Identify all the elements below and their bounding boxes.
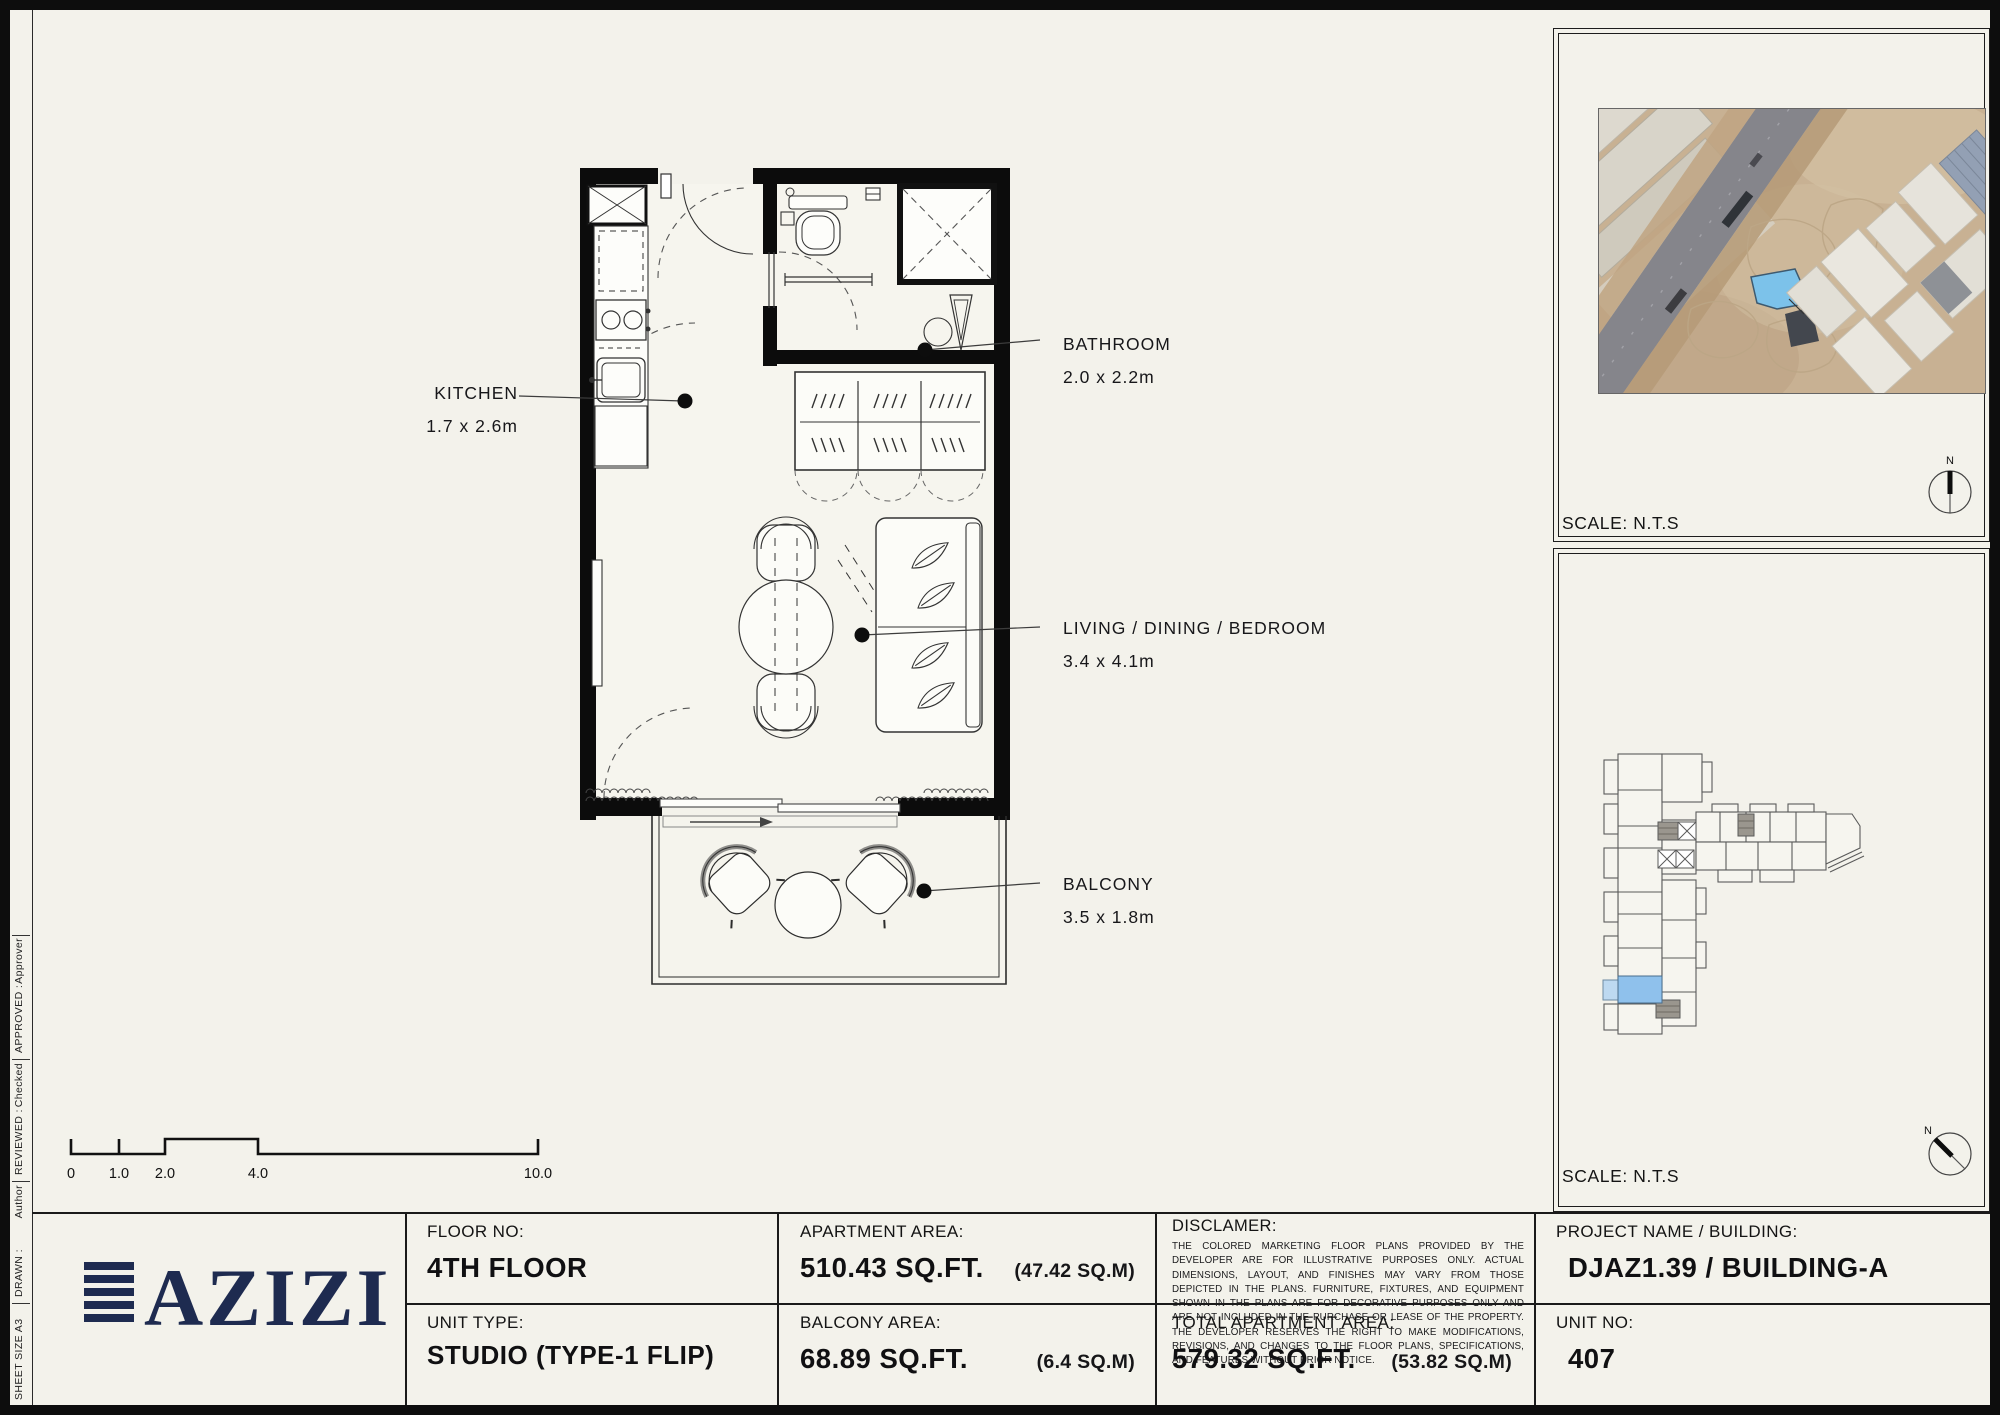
scale-tick: 2.0 [155,1166,175,1182]
reviewed-value: Checked [13,1063,25,1107]
scale-tick: 10.0 [524,1166,552,1182]
bed [876,518,982,732]
scale-tick: 4.0 [248,1166,268,1182]
living-dims: 3.4 x 4.1m [1063,645,1326,678]
reviewed-field: REVIEWED : Checked [13,1063,25,1175]
apartment-area-value: 510.43 SQ.FT. [800,1252,984,1284]
apartment-area-label: APARTMENT AREA: [800,1222,964,1242]
apartment-area-row: 510.43 SQ.FT. (47.42 SQ.M) [800,1252,1135,1284]
total-area-label: TOTAL APARTMENT AREA: [1172,1313,1395,1333]
azizi-logo: AZIZI [84,1262,391,1327]
sidebar-divider [32,10,33,1405]
sheet-size-field: SHEET SIZE A3 [13,1308,25,1400]
kitchen-name: KITCHEN [368,377,518,410]
sidebar-tick [12,1303,30,1304]
sidebar-tick [12,1059,30,1060]
unit-type-value: STUDIO (TYPE-1 FLIP) [427,1340,714,1371]
apartment-area-metric: (47.42 SQ.M) [1014,1260,1135,1283]
floor-plan-sheet: SHEET SIZE A3 DRAWN : Author REVIEWED : … [0,0,2000,1415]
title-block-col-line [405,1212,407,1405]
project-name-label: PROJECT NAME / BUILDING: [1556,1222,1798,1242]
balcony-dims: 3.5 x 1.8m [1063,901,1155,934]
bathroom-label: BATHROOM 2.0 x 2.2m [1063,328,1171,394]
sidebar-tick [12,1181,30,1182]
highlighted-unit [1618,976,1662,1003]
total-area-row: 579.32 SQ.FT. (53.82 SQ.M) [1172,1343,1512,1375]
scale-tick: 1.0 [109,1166,129,1182]
balcony-area-row: 68.89 SQ.FT. (6.4 SQ.M) [800,1343,1135,1375]
unit-floor-plan-drawing [430,150,1070,1050]
balcony-area-label: BALCONY AREA: [800,1313,941,1333]
site-map-scale-note: SCALE: N.T.S [1562,513,1679,534]
floor-no-value: 4TH FLOOR [427,1252,587,1284]
approved-value: Approver [13,938,25,984]
project-name-value: DJAZ1.39 / BUILDING-A [1568,1252,1889,1284]
drawn-value: Author [13,1185,25,1218]
total-area-metric: (53.82 SQ.M) [1391,1351,1512,1374]
bathroom-name: BATHROOM [1063,328,1171,361]
balcony-area-metric: (6.4 SQ.M) [1037,1351,1135,1374]
graphic-scale-bar: 0 1.0 2.0 4.0 10.0 [50,1120,610,1200]
north-compass-icon: N [1916,1118,1980,1184]
azizi-logo-text: AZIZI [144,1268,391,1327]
kitchen-label: KITCHEN 1.7 x 2.6m [368,377,518,443]
unit-no-label: UNIT NO: [1556,1313,1634,1333]
bathroom-dims: 2.0 x 2.2m [1063,361,1171,394]
title-block-top-line [32,1212,1990,1214]
shaft-duct [900,186,994,282]
sidebar-tick [12,935,30,936]
total-area-value: 579.32 SQ.FT. [1172,1343,1356,1375]
approved-label: APPROVED : [13,985,25,1053]
disclaimer-heading: DISCLAMER: [1172,1217,1277,1236]
title-block-col-line [1534,1212,1536,1405]
floor-no-label: FLOOR NO: [427,1222,524,1242]
kitchen-dims: 1.7 x 2.6m [368,410,518,443]
balcony-name: BALCONY [1063,868,1155,901]
scale-tick: 0 [67,1166,75,1182]
title-block-col-line [777,1212,779,1405]
key-plan-drawing [1600,752,1880,1052]
site-map-image [1598,108,1986,394]
approved-field: APPROVED : Approver [13,938,25,1053]
living-name: LIVING / DINING / BEDROOM [1063,612,1326,645]
sheet-size-label: SHEET SIZE A3 [13,1319,25,1400]
drawn-field: DRAWN : Author [13,1185,25,1297]
key-plan-scale-note: SCALE: N.T.S [1562,1166,1679,1187]
living-label: LIVING / DINING / BEDROOM 3.4 x 4.1m [1063,612,1326,678]
reviewed-label: REVIEWED : [13,1109,25,1175]
title-block-col-line [1155,1212,1157,1405]
balcony-area-value: 68.89 SQ.FT. [800,1343,968,1375]
unit-type-label: UNIT TYPE: [427,1313,524,1333]
north-letter: N [1924,1125,1932,1137]
north-compass-icon: N [1920,450,1980,520]
azizi-logo-bars-icon [84,1262,134,1327]
balcony-label: BALCONY 3.5 x 1.8m [1063,868,1155,934]
unit-no-value: 407 [1568,1343,1615,1375]
north-letter: N [1946,455,1954,467]
drawn-label: DRAWN : [13,1249,25,1297]
highlighted-unit-balcony [1603,980,1618,1000]
